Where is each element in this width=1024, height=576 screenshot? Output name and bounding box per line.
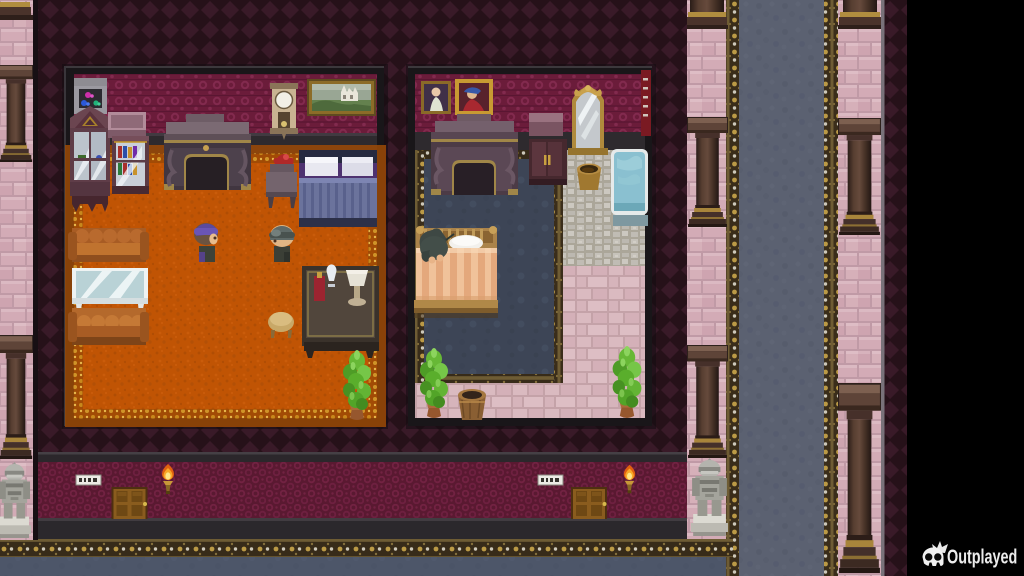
svg-text:Outplayed: Outplayed [947,545,1017,568]
